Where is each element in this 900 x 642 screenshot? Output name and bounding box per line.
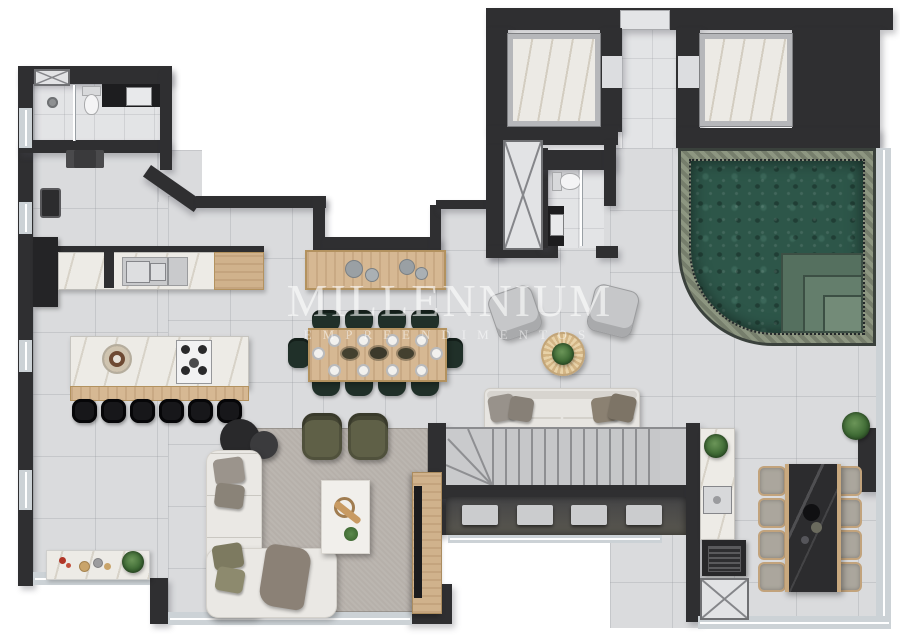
paver-slab — [517, 505, 553, 525]
pool-step-3 — [823, 295, 863, 333]
island-stool — [72, 399, 97, 423]
plate-icon — [415, 334, 428, 347]
window-left-1 — [19, 108, 32, 148]
laundry-sink-icon — [40, 188, 61, 218]
shower-head-icon — [47, 97, 58, 108]
island-stools — [72, 398, 242, 424]
glass-below-planter — [448, 535, 662, 543]
counter-plant — [704, 434, 728, 458]
sink-basin-2-icon — [150, 263, 166, 281]
sofa-pillow — [607, 393, 638, 424]
toilet-bowl-icon — [84, 94, 99, 115]
plate-end-left — [312, 347, 325, 360]
island-stool — [159, 399, 184, 423]
sofa-blanket — [257, 543, 312, 611]
elevator-shaft-1 — [508, 34, 600, 126]
entry-recess — [620, 10, 670, 30]
decor-bowl — [79, 561, 90, 572]
armchair-2 — [348, 413, 388, 460]
wall-dining-top — [323, 237, 441, 250]
plate-icon — [415, 364, 428, 377]
decor-flowers-red — [59, 557, 66, 564]
glass-right-facade — [876, 148, 891, 628]
outdoor-chairs-left — [758, 466, 782, 592]
tall-cabinet — [33, 237, 58, 307]
table-vase — [803, 504, 820, 521]
dining-plates-bottom — [328, 363, 428, 377]
plate-icon — [357, 334, 370, 347]
outdoor-dining-table — [785, 464, 841, 592]
counter-wood-cabinet — [214, 252, 264, 290]
island-stool — [101, 399, 126, 423]
paver-slab — [462, 505, 498, 525]
console-plant — [122, 551, 144, 573]
cooktop-icon — [176, 340, 212, 384]
dining-table — [308, 328, 447, 382]
sink-icon — [126, 87, 152, 106]
wall-elevator-top — [486, 8, 893, 30]
wall-bath2-left — [486, 145, 503, 258]
outdoor-dining-chair — [758, 498, 786, 528]
table-decor — [801, 536, 809, 544]
plate-icon — [328, 364, 341, 377]
sofa-pillow — [214, 566, 246, 594]
shower2-glass — [580, 170, 582, 246]
armchair-1 — [302, 413, 342, 460]
window-left-3 — [19, 340, 32, 372]
counter-divider — [104, 252, 114, 288]
buffet-sideboard — [305, 250, 446, 290]
decor-moss-bowl — [344, 527, 358, 541]
bbq-hatch — [700, 578, 749, 620]
outdoor-dining-chair — [758, 466, 786, 496]
shower-glass — [73, 85, 75, 141]
pool-water — [691, 161, 863, 333]
sofa-pillow — [214, 482, 246, 509]
plate-end-right — [430, 347, 443, 360]
kitchen-sink-unit — [122, 257, 188, 286]
wall-bottom-left-step — [150, 578, 168, 624]
sink2-icon — [550, 214, 564, 236]
outdoor-dining-chair — [758, 530, 786, 560]
decor-flowers-red — [66, 563, 71, 568]
plate-icon — [386, 334, 399, 347]
window-hatch-top-left — [34, 69, 70, 86]
stairs-winder — [446, 427, 492, 485]
paver-slab — [571, 505, 607, 525]
wall-pool-top — [676, 128, 880, 148]
island-stool — [188, 399, 213, 423]
wall-elevator-left — [486, 28, 508, 132]
toilet2-bowl-icon — [560, 173, 581, 190]
table-decor — [811, 522, 822, 533]
floor-plan: MILLENNIUM EMPREENDIMENTOS — [0, 0, 900, 642]
wall-bbq-left — [686, 423, 700, 622]
table-plant — [552, 343, 574, 365]
coffee-table — [321, 480, 370, 554]
pool — [678, 148, 876, 346]
kitchen-island — [70, 336, 249, 388]
shaft-void-hatch — [503, 140, 543, 250]
wall-bath2-right — [604, 140, 616, 206]
island-stool — [130, 399, 155, 423]
paver-slab — [626, 505, 662, 525]
bbq-grill — [702, 540, 746, 576]
wall-stub-vertical — [430, 205, 441, 250]
stairs-landing — [660, 427, 686, 485]
sofa-pillow — [507, 395, 534, 422]
decor-bowl — [104, 563, 111, 570]
elevator-shaft-2 — [700, 34, 792, 126]
wall-block-right — [160, 70, 172, 170]
plate-icon — [357, 364, 370, 377]
outdoor-dining-chair — [758, 562, 786, 592]
service-appliances — [66, 150, 104, 168]
bbq-sink-icon — [703, 486, 732, 514]
decor-bowl — [93, 558, 103, 568]
stairs-treads — [492, 427, 660, 485]
centerpiece-platter — [370, 347, 387, 359]
sink-basin-1-icon — [126, 261, 150, 283]
window-left-2 — [19, 202, 32, 234]
sofa-pillow — [212, 456, 245, 486]
centerpiece-platter — [398, 348, 414, 359]
planter-slabs — [462, 503, 662, 527]
tv-screen — [414, 486, 422, 598]
centerpiece-platter — [342, 348, 358, 359]
elevator-door-2 — [678, 56, 700, 88]
plate-icon — [386, 364, 399, 377]
dining-plates-top — [328, 333, 428, 347]
window-left-4 — [19, 470, 32, 510]
corner-plant — [842, 412, 870, 440]
wall-mid-horizontal — [196, 196, 326, 208]
wall-bath2-bottom-right — [596, 246, 618, 258]
serving-plate-icon — [102, 344, 132, 374]
dining-chair-end-left — [288, 338, 310, 368]
plate-icon — [328, 334, 341, 347]
elevator-door-1 — [602, 56, 622, 88]
